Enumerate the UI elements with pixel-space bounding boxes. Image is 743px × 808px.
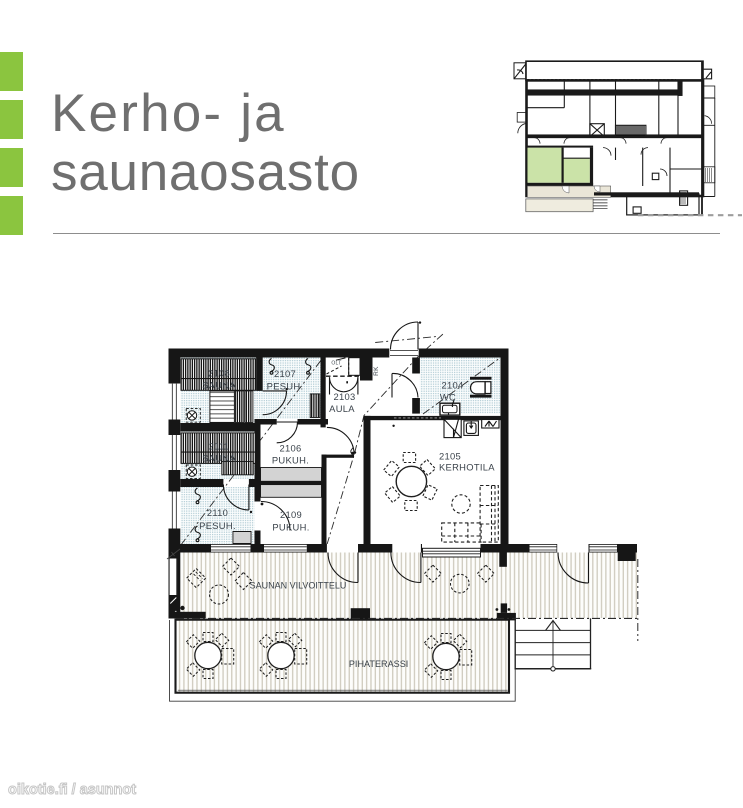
svg-text:2108: 2108	[208, 368, 230, 379]
svg-text:SAUNAN VILVOITTELU: SAUNAN VILVOITTELU	[250, 581, 347, 591]
svg-text:PESUH.: PESUH.	[267, 381, 304, 392]
svg-text:2106: 2106	[279, 443, 301, 454]
svg-text:2110: 2110	[207, 507, 228, 518]
svg-text:2104: 2104	[441, 380, 463, 391]
svg-text:2111: 2111	[209, 441, 230, 452]
svg-text:PIHATERASSI: PIHATERASSI	[349, 659, 408, 669]
svg-text:WC: WC	[440, 392, 456, 403]
svg-text:2107: 2107	[274, 368, 296, 379]
svg-text:PUKUH.: PUKUH.	[272, 522, 309, 533]
svg-text:SAUNA: SAUNA	[202, 453, 236, 464]
svg-text:SAUNA: SAUNA	[202, 380, 236, 391]
svg-text:PESUH.: PESUH.	[199, 520, 236, 531]
svg-text:2103: 2103	[333, 391, 355, 402]
svg-text:OLT: OLT	[331, 361, 341, 367]
svg-text:2105: 2105	[439, 450, 461, 461]
svg-text:KERHOTILA: KERHOTILA	[439, 462, 495, 473]
svg-text:AULA: AULA	[329, 403, 355, 414]
svg-text:2109: 2109	[280, 509, 302, 520]
svg-text:RK: RK	[373, 366, 380, 376]
svg-text:PUKUH.: PUKUH.	[272, 455, 309, 466]
